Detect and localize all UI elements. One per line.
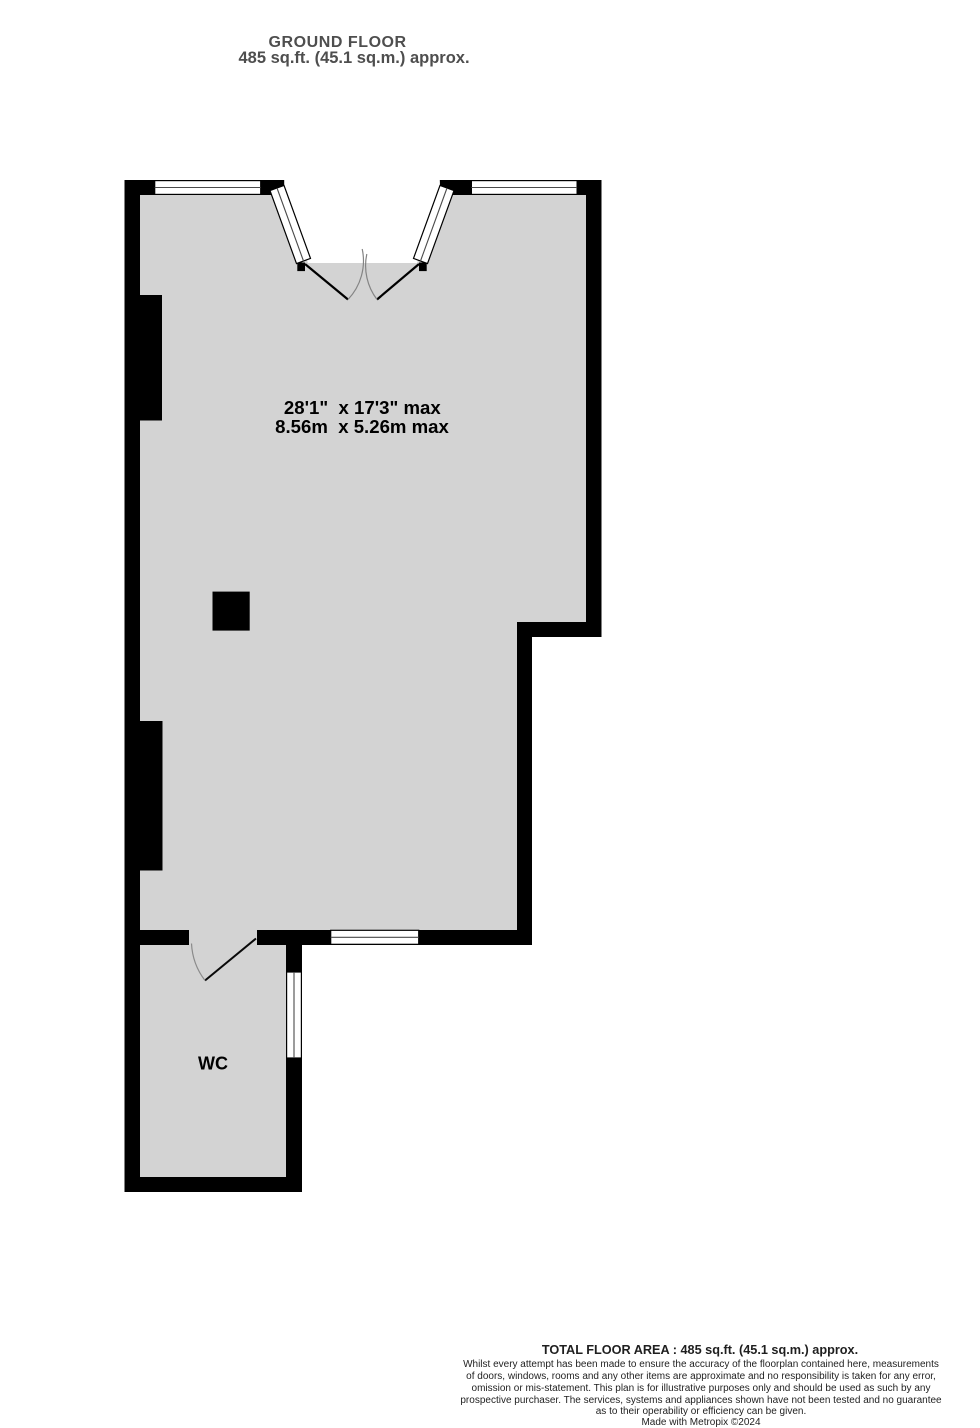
svg-text:28'1" x 17'3" max: 28'1" x 17'3" max	[284, 397, 441, 418]
svg-text:8.56m x 5.26m max: 8.56m x 5.26m max	[275, 416, 449, 437]
svg-text:WC: WC	[198, 1054, 228, 1074]
